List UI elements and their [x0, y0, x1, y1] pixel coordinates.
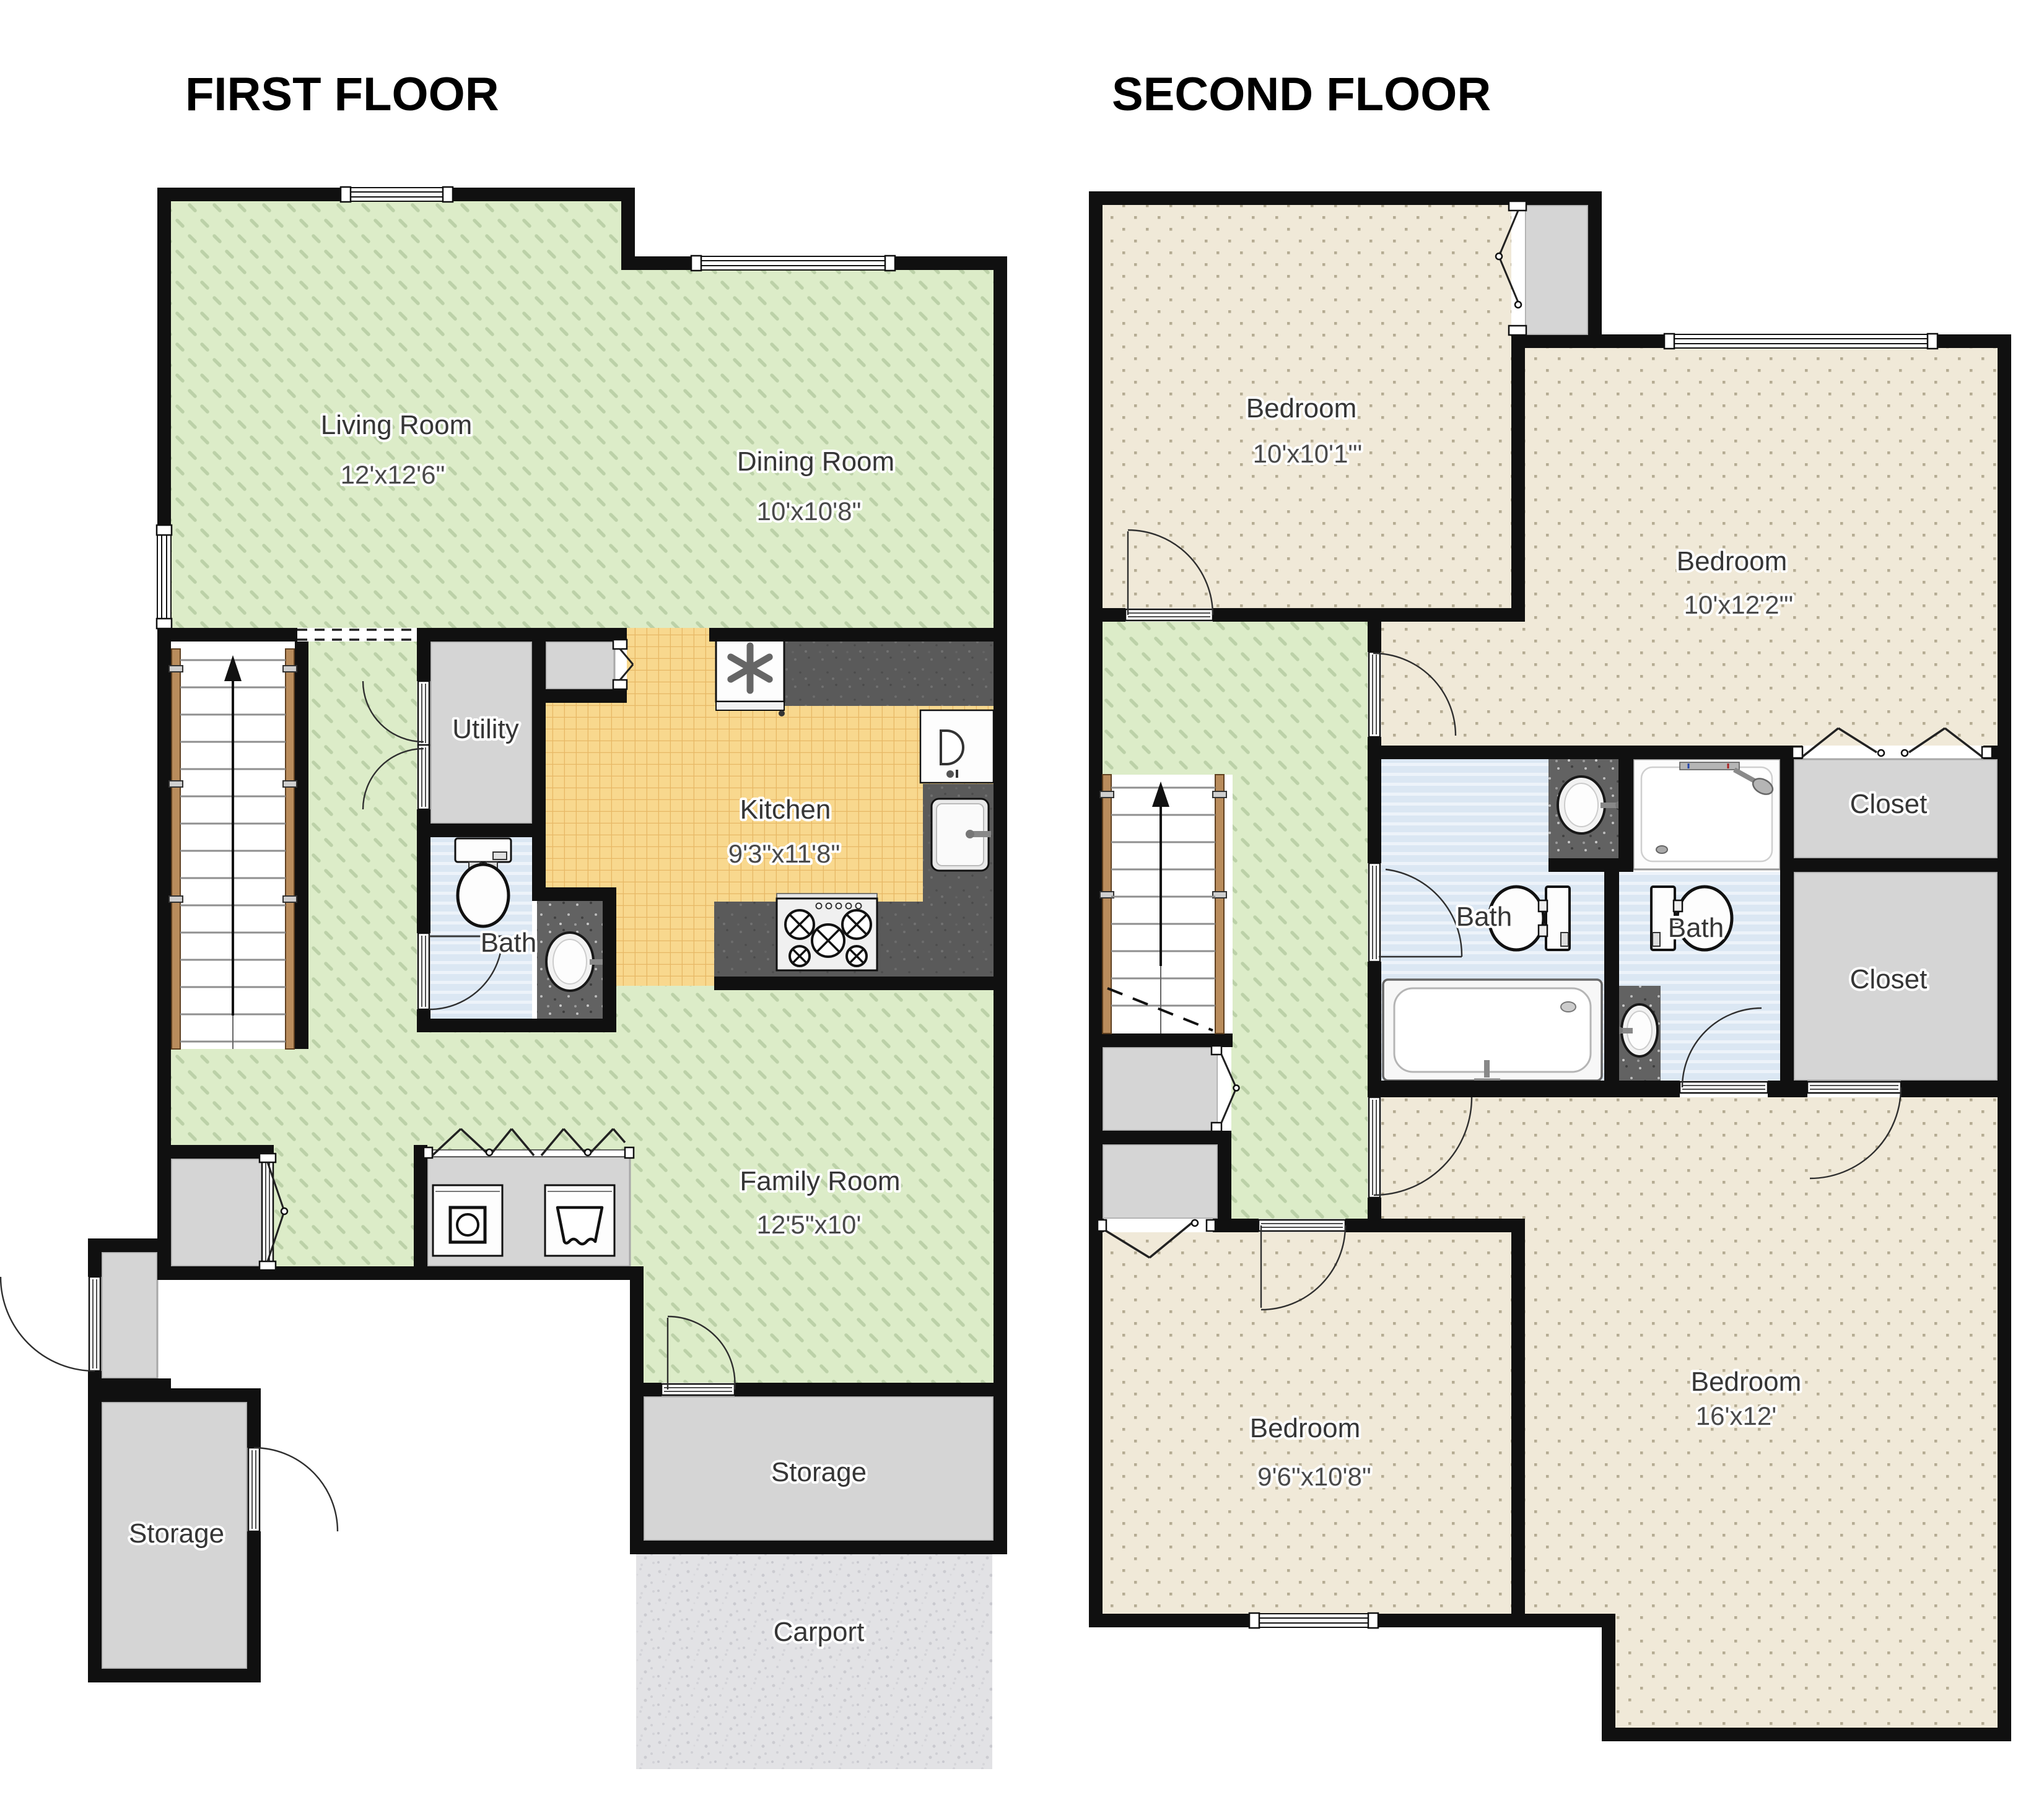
- svg-text:Living Room: Living Room: [321, 410, 473, 440]
- svg-text:16'x12': 16'x12': [1696, 1401, 1776, 1430]
- svg-text:Bedroom: Bedroom: [1677, 546, 1788, 577]
- svg-text:9'3"x11'8": 9'3"x11'8": [728, 839, 841, 868]
- svg-text:Family Room: Family Room: [740, 1166, 900, 1196]
- svg-text:Utility: Utility: [452, 714, 519, 744]
- svg-text:9'6"x10'8": 9'6"x10'8": [1257, 1462, 1371, 1491]
- svg-text:Carport: Carport: [774, 1617, 865, 1647]
- svg-text:Storage: Storage: [129, 1518, 224, 1549]
- svg-text:SECOND FLOOR: SECOND FLOOR: [1112, 68, 1491, 121]
- svg-text:Bath: Bath: [481, 928, 537, 958]
- svg-text:Bath: Bath: [1456, 902, 1513, 932]
- svg-text:Bedroom: Bedroom: [1246, 393, 1357, 424]
- svg-text:Storage: Storage: [771, 1457, 867, 1487]
- svg-text:10'x10'8": 10'x10'8": [757, 497, 862, 526]
- svg-text:Closet: Closet: [1850, 789, 1928, 819]
- svg-text:Kitchen: Kitchen: [740, 794, 831, 825]
- svg-text:Bedroom: Bedroom: [1691, 1367, 1802, 1397]
- svg-text:10'x12'2"': 10'x12'2"': [1684, 590, 1794, 619]
- svg-text:Closet: Closet: [1850, 964, 1928, 994]
- svg-text:Bath: Bath: [1668, 913, 1724, 943]
- svg-text:12'5"x10': 12'5"x10': [757, 1210, 862, 1239]
- svg-text:FIRST FLOOR: FIRST FLOOR: [185, 68, 499, 121]
- svg-text:Dining Room: Dining Room: [737, 446, 894, 477]
- svg-text:12'x12'6": 12'x12'6": [341, 460, 445, 489]
- svg-text:10'x10'1"': 10'x10'1"': [1253, 439, 1363, 468]
- svg-text:Bedroom: Bedroom: [1250, 1413, 1361, 1443]
